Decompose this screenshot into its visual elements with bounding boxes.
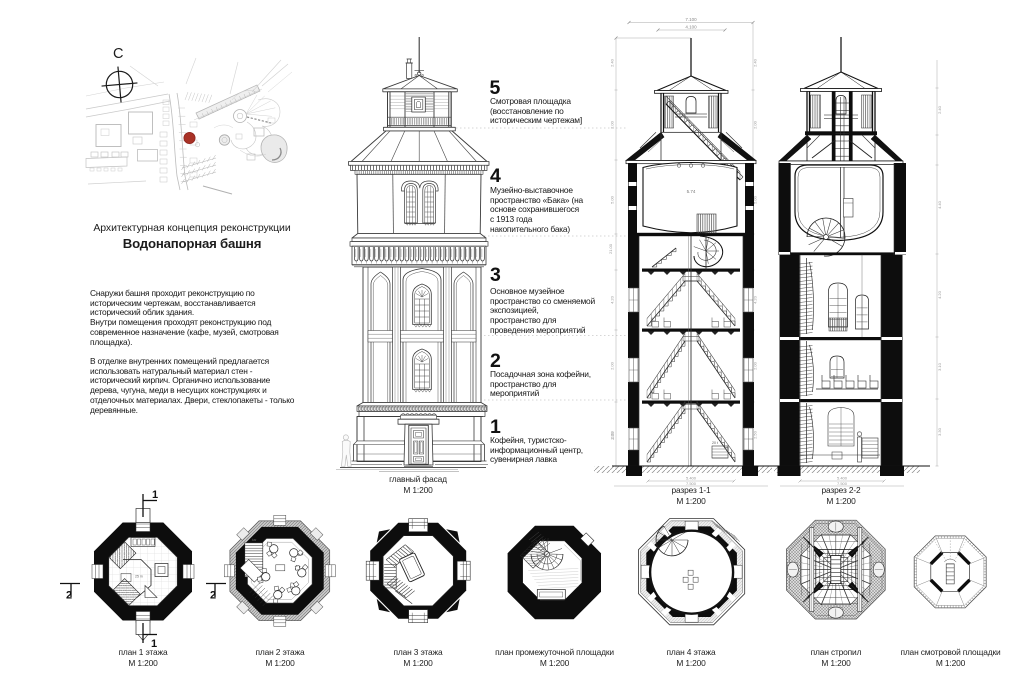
svg-text:3.10: 3.10 (937, 362, 942, 371)
svg-text:5.74: 5.74 (687, 189, 696, 194)
svg-text:2: 2 (210, 590, 216, 602)
svg-text:2.40: 2.40 (753, 58, 758, 67)
svg-text:21.00: 21.00 (608, 243, 613, 254)
svg-text:2.00: 2.00 (753, 120, 758, 129)
svg-text:4.20: 4.20 (937, 290, 942, 299)
svg-text:2.00: 2.00 (610, 120, 615, 129)
svg-text:4.40: 4.40 (937, 200, 942, 209)
svg-text:4.100: 4.100 (685, 25, 697, 30)
svg-text:2.40: 2.40 (610, 58, 615, 67)
svg-text:20 t: 20 t (712, 441, 718, 445)
svg-text:2.00: 2.00 (610, 361, 615, 370)
svg-text:5.400: 5.400 (686, 476, 697, 481)
svg-text:2: 2 (66, 590, 72, 602)
svg-text:2.40: 2.40 (937, 105, 942, 114)
svg-text:1: 1 (152, 489, 158, 501)
svg-text:7.100: 7.100 (685, 17, 697, 22)
svg-text:25 m: 25 m (135, 575, 143, 579)
svg-text:4.20: 4.20 (610, 295, 615, 304)
svg-text:3.30: 3.30 (937, 427, 942, 436)
svg-text:2.50: 2.50 (610, 430, 615, 439)
svg-text:5.400: 5.400 (837, 476, 848, 481)
svg-text:5.00: 5.00 (610, 195, 615, 204)
